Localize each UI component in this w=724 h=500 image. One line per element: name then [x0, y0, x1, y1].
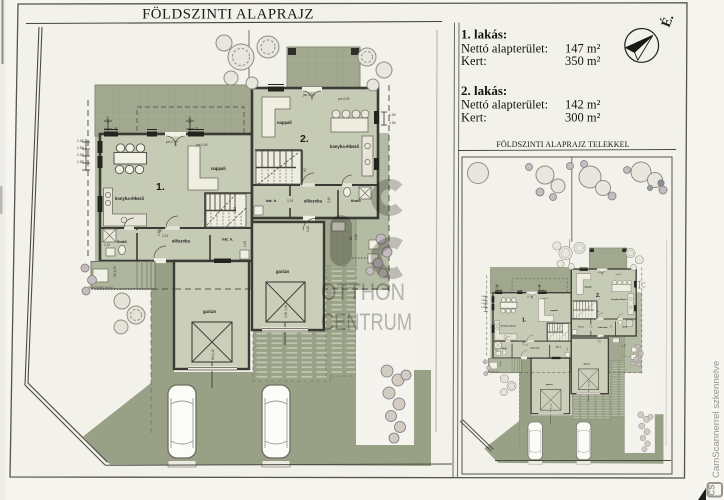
svg-text:1.50: 1.50 [77, 146, 84, 150]
svg-text:1.00: 1.00 [77, 153, 84, 157]
svg-text:hát. h.: hát. h. [266, 199, 277, 203]
svg-text:80 2,40: 80 2,40 [211, 349, 215, 360]
svg-text:pm 0,90: pm 0,90 [338, 97, 350, 101]
svg-text:1.00: 1.00 [389, 113, 396, 117]
svg-text:2,30 2,45: 2,30 2,45 [284, 304, 288, 318]
svg-text:30 1,50: 30 1,50 [113, 266, 117, 277]
svg-text:2,19: 2,19 [287, 199, 293, 203]
svg-text:Kert:: Kert: [461, 111, 487, 125]
svg-text:pm 2,00: pm 2,00 [166, 140, 178, 144]
svg-text:CS: CS [708, 484, 717, 496]
svg-text:CENTRUM: CENTRUM [321, 309, 412, 336]
svg-text:75: 75 [158, 229, 162, 233]
svg-text:jan 0,00: jan 0,00 [302, 93, 315, 97]
svg-text:1.: 1. [156, 181, 165, 193]
svg-text:FÖLDSZINTI ALAPRAJZ: FÖLDSZINTI ALAPRAJZ [142, 6, 314, 23]
svg-text:300 m²: 300 m² [565, 111, 601, 125]
svg-text:2,10: 2,10 [327, 197, 331, 203]
svg-text:konyha-étkező: konyha-étkező [115, 196, 145, 201]
svg-text:pm 0,90: pm 0,90 [196, 143, 208, 147]
svg-text:előszoba: előszoba [304, 199, 323, 204]
svg-text:2.: 2. [300, 133, 309, 145]
svg-text:1.00: 1.00 [77, 139, 84, 143]
svg-text:előszoba: előszoba [172, 239, 191, 244]
svg-text:2,10: 2,10 [233, 207, 237, 213]
svg-text:nappali: nappali [211, 166, 226, 171]
svg-text:2,10: 2,10 [104, 243, 110, 247]
svg-text:OTTHON: OTTHON [321, 279, 405, 306]
svg-text:142 m²: 142 m² [565, 98, 601, 112]
svg-text:hát. h.: hát. h. [222, 238, 233, 242]
svg-text:90: 90 [303, 168, 307, 172]
svg-text:fürdő: fürdő [351, 199, 361, 203]
svg-text:2,10: 2,10 [306, 226, 310, 232]
svg-text:Kert:: Kert: [461, 54, 487, 68]
svg-text:1.80: 1.80 [188, 116, 192, 123]
svg-text:nappali: nappali [277, 120, 292, 125]
svg-text:1,50: 1,50 [354, 234, 358, 240]
svg-text:1.50: 1.50 [389, 121, 396, 125]
svg-text:FÖLDSZINTI ALAPRAJZ TELEKKEL: FÖLDSZINTI ALAPRAJZ TELEKKEL [496, 140, 629, 149]
svg-text:fürdő: fürdő [117, 240, 127, 244]
svg-text:Nettó alapterület:: Nettó alapterület: [461, 98, 548, 112]
svg-text:1. lakás:: 1. lakás: [461, 27, 507, 42]
svg-text:CamScannerrel szkennelve: CamScannerrel szkennelve [711, 361, 722, 478]
svg-text:1.00: 1.00 [106, 116, 110, 123]
svg-text:garázs: garázs [276, 269, 290, 274]
svg-text:2,10: 2,10 [162, 234, 168, 238]
svg-text:2,45: 2,45 [243, 241, 247, 247]
svg-text:2. lakás:: 2. lakás: [461, 83, 507, 98]
svg-text:Garázslejáró rámpa: Garázslejáró rámpa [88, 285, 113, 289]
svg-text:350 m²: 350 m² [565, 54, 601, 68]
svg-text:1.50: 1.50 [77, 160, 84, 164]
svg-text:konyha-étkező: konyha-étkező [330, 144, 360, 149]
svg-text:garázs: garázs [203, 309, 217, 314]
